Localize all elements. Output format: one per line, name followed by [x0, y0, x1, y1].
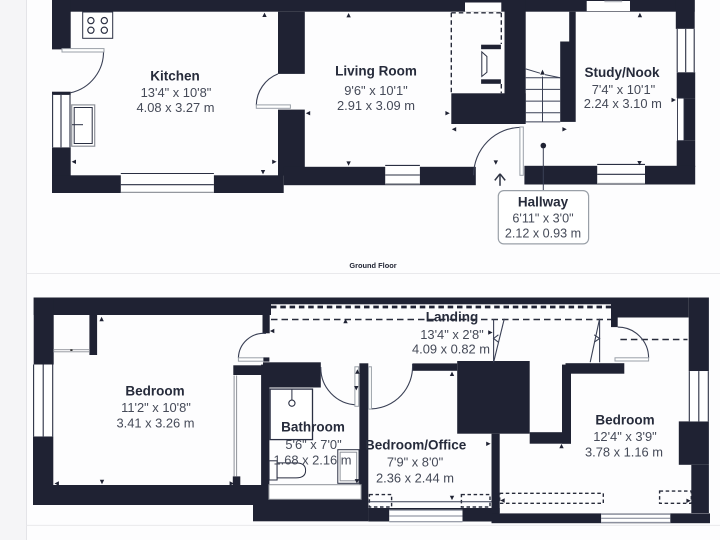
- svg-text:Ground Floor: Ground Floor: [349, 261, 396, 270]
- svg-text:Bedroom: Bedroom: [125, 384, 184, 399]
- svg-text:6'11" x 3'0": 6'11" x 3'0": [512, 212, 573, 226]
- svg-text:Kitchen: Kitchen: [150, 69, 200, 84]
- svg-text:4.08 x 3.27 m: 4.08 x 3.27 m: [136, 100, 214, 115]
- svg-text:Bedroom/Office: Bedroom/Office: [365, 438, 467, 453]
- svg-text:13'4" x 2'8": 13'4" x 2'8": [420, 327, 484, 342]
- svg-text:2.36 x 2.44 m: 2.36 x 2.44 m: [376, 471, 454, 486]
- svg-text:7'9" x 8'0": 7'9" x 8'0": [387, 455, 444, 470]
- svg-text:Hallway: Hallway: [518, 195, 569, 210]
- svg-text:7'4" x 10'1": 7'4" x 10'1": [592, 82, 656, 97]
- svg-text:Living Room: Living Room: [335, 64, 417, 79]
- svg-text:12'4" x 3'9": 12'4" x 3'9": [593, 429, 657, 444]
- svg-text:2.24 x 3.10 m: 2.24 x 3.10 m: [584, 96, 662, 111]
- svg-text:5'6" x 7'0": 5'6" x 7'0": [285, 437, 342, 452]
- svg-text:3.41 x 3.26 m: 3.41 x 3.26 m: [116, 416, 194, 431]
- svg-text:Bathroom: Bathroom: [281, 420, 345, 435]
- svg-text:9'6" x 10'1": 9'6" x 10'1": [344, 83, 408, 98]
- svg-text:Study/Nook: Study/Nook: [584, 65, 659, 80]
- svg-text:Landing: Landing: [426, 310, 479, 325]
- svg-text:13'4" x 10'8": 13'4" x 10'8": [141, 85, 212, 100]
- svg-text:2.91 x 3.09 m: 2.91 x 3.09 m: [337, 98, 415, 113]
- svg-text:2.12 x 0.93 m: 2.12 x 0.93 m: [505, 227, 581, 241]
- svg-text:4.09 x 0.82 m: 4.09 x 0.82 m: [412, 342, 490, 357]
- svg-text:Bedroom: Bedroom: [595, 413, 654, 428]
- svg-text:1.68 x 2.16 m: 1.68 x 2.16 m: [273, 453, 351, 468]
- svg-text:11'2" x 10'8": 11'2" x 10'8": [121, 400, 191, 415]
- svg-text:3.78 x 1.16 m: 3.78 x 1.16 m: [585, 445, 663, 460]
